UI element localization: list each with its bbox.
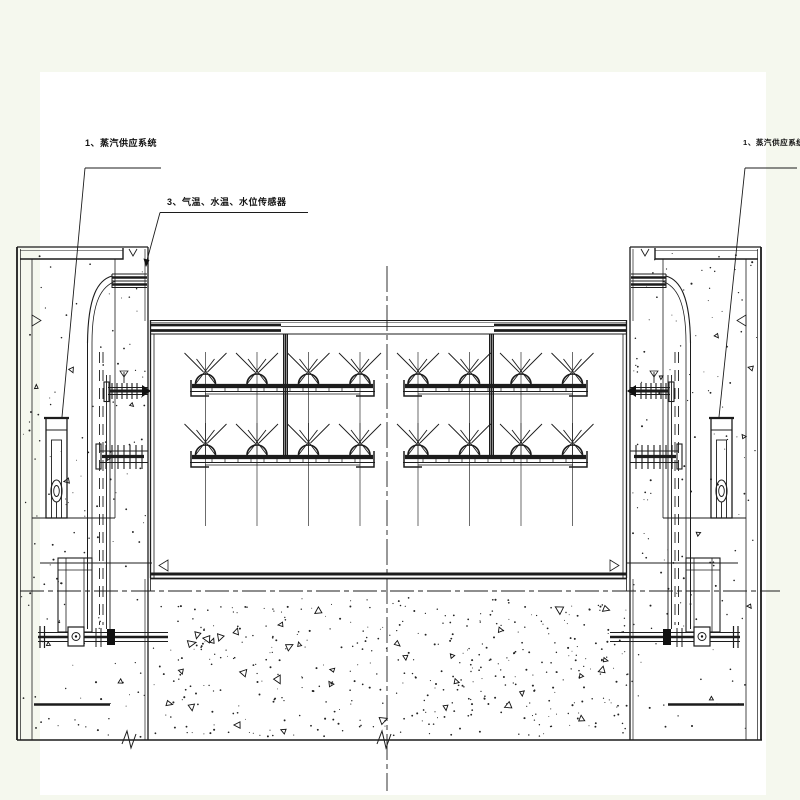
foundation-bottom [17, 731, 762, 748]
label-steam-supply-left: 1、蒸汽供应系统 [85, 139, 157, 148]
left-pier [17, 247, 168, 740]
concrete-texture [21, 253, 757, 738]
spray-pipe-assemblies [185, 352, 594, 526]
label-steam-supply-right: 1、蒸汽供应系统 [743, 139, 800, 147]
engineering-drawing [0, 0, 800, 800]
right-pier [610, 247, 761, 740]
label-sensors: 3、气温、水温、水位传感器 [167, 198, 287, 207]
drawing-canvas: 1、蒸汽供应系统 3、气温、水温、水位传感器 1、蒸汽供应系统 [0, 0, 800, 800]
